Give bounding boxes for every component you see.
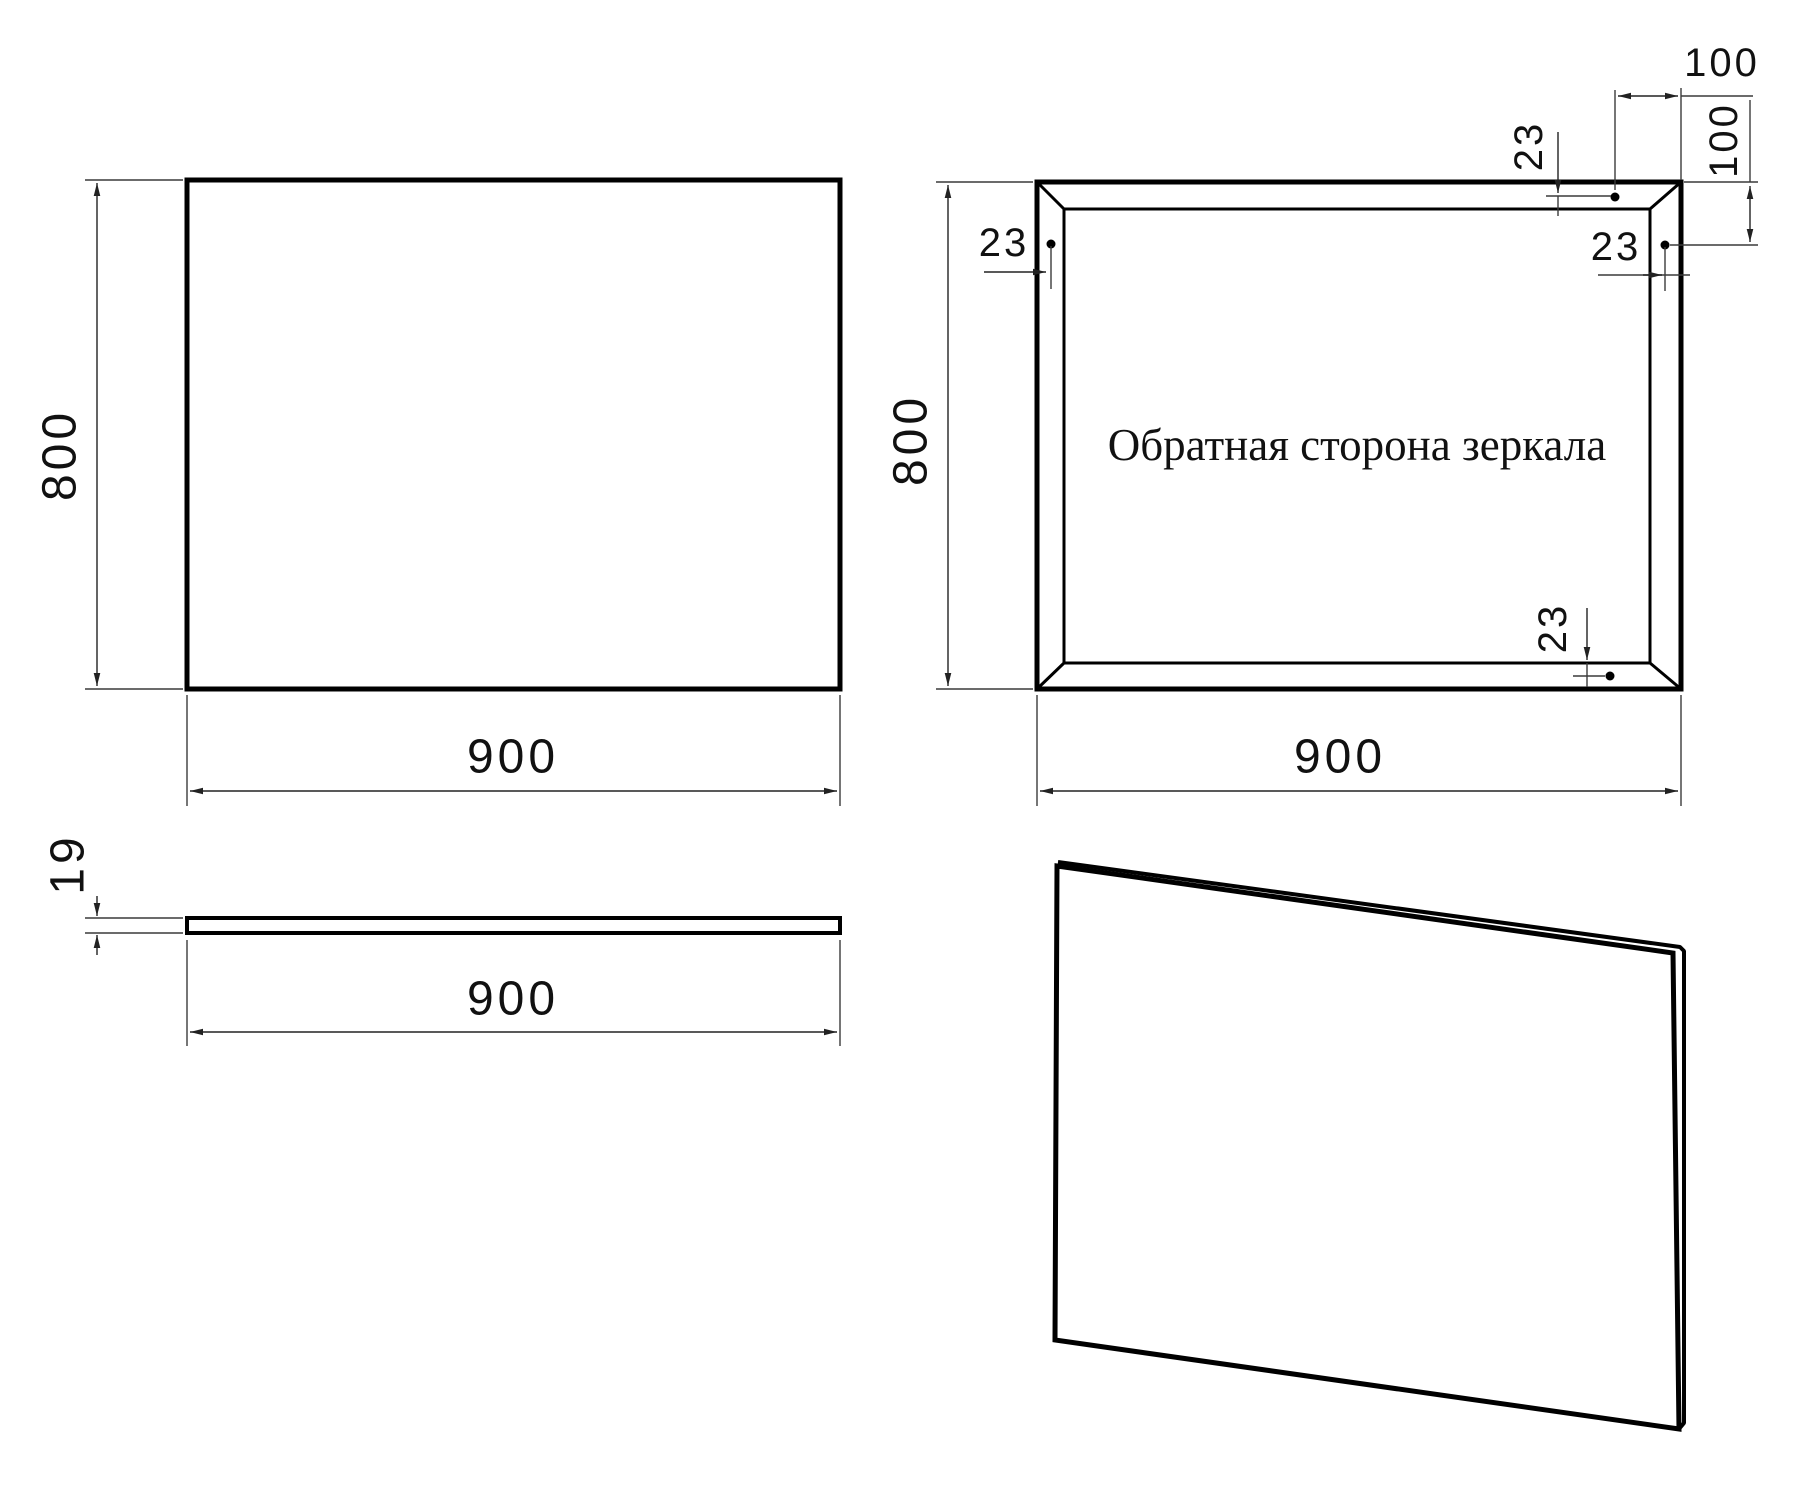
hole-offset-top-label: 23 (1507, 121, 1551, 172)
side-view-outline (187, 918, 840, 933)
side-width-dimension: 900 (187, 940, 840, 1046)
back-view: Обратная сторона зеркала 800 900 23 (885, 41, 1760, 806)
back-view-title: Обратная сторона зеркала (1108, 420, 1606, 470)
side-thickness-label: 19 (42, 833, 95, 894)
hole-marker-top (1611, 193, 1620, 202)
back-width-label: 900 (1294, 731, 1386, 784)
hole-spacing-right-label: 100 (1702, 102, 1746, 178)
front-height-dimension: 800 (34, 180, 184, 689)
front-width-dimension: 900 (187, 695, 840, 806)
back-height-label: 800 (885, 394, 938, 486)
hole-offset-right-label: 23 (1591, 225, 1642, 269)
front-width-label: 900 (467, 731, 559, 784)
side-view: 19 900 (42, 833, 841, 1046)
hole-marker-bottom (1606, 672, 1615, 681)
hole-offset-bottom-label: 23 (1531, 603, 1575, 654)
mirror-technical-drawing: 800 900 Обратная сторона зеркала 800 (0, 0, 1800, 1488)
drawing-sheet: 800 900 Обратная сторона зеркала 800 (0, 0, 1800, 1488)
side-thickness-dimension: 19 (42, 833, 184, 955)
hole-offset-left-label: 23 (979, 221, 1030, 265)
front-height-label: 800 (34, 409, 87, 501)
front-view: 800 900 (34, 180, 841, 806)
side-width-label: 900 (467, 973, 559, 1026)
perspective-front-face (1055, 866, 1679, 1429)
front-view-outline (187, 180, 840, 689)
hole-spacing-top-label: 100 (1684, 41, 1760, 85)
back-width-dimension: 900 (1037, 695, 1681, 806)
perspective-view (1055, 862, 1684, 1429)
